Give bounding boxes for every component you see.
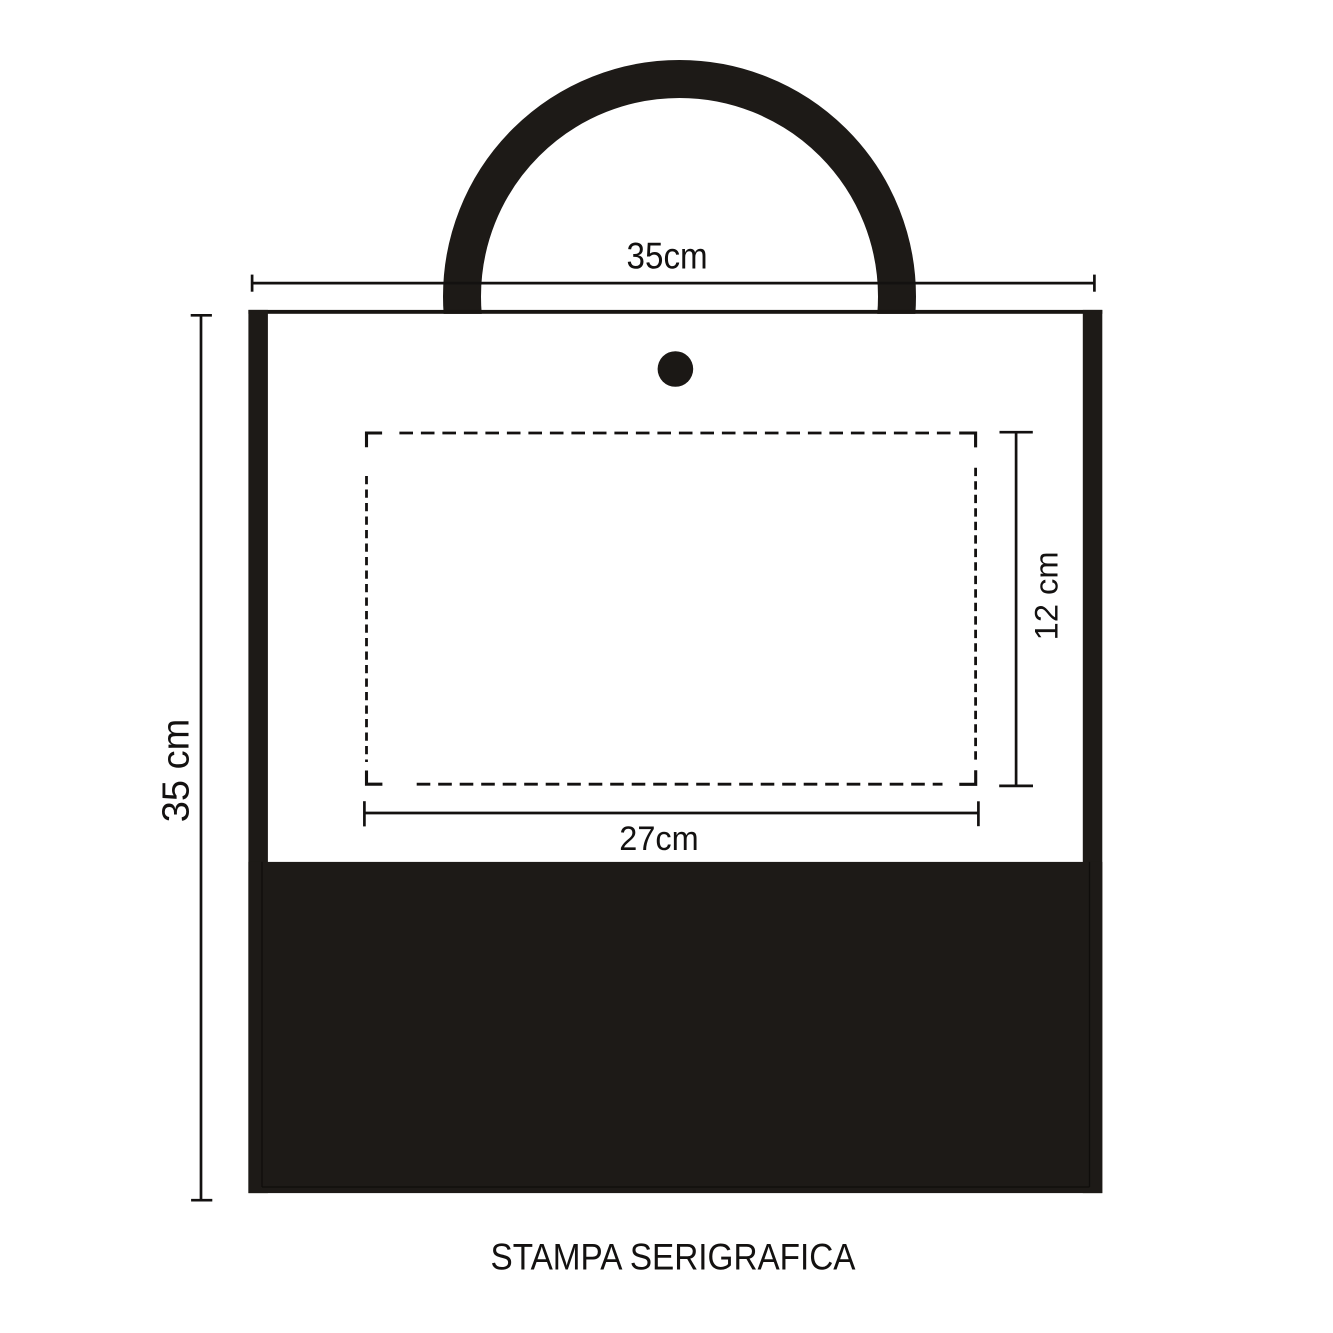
svg-text:27cm: 27cm (619, 820, 698, 858)
svg-text:35 cm: 35 cm (156, 719, 198, 822)
svg-text:12 cm: 12 cm (1029, 551, 1065, 640)
svg-text:35cm: 35cm (627, 235, 708, 277)
svg-text:STAMPA SERIGRAFICA: STAMPA SERIGRAFICA (490, 1237, 856, 1278)
